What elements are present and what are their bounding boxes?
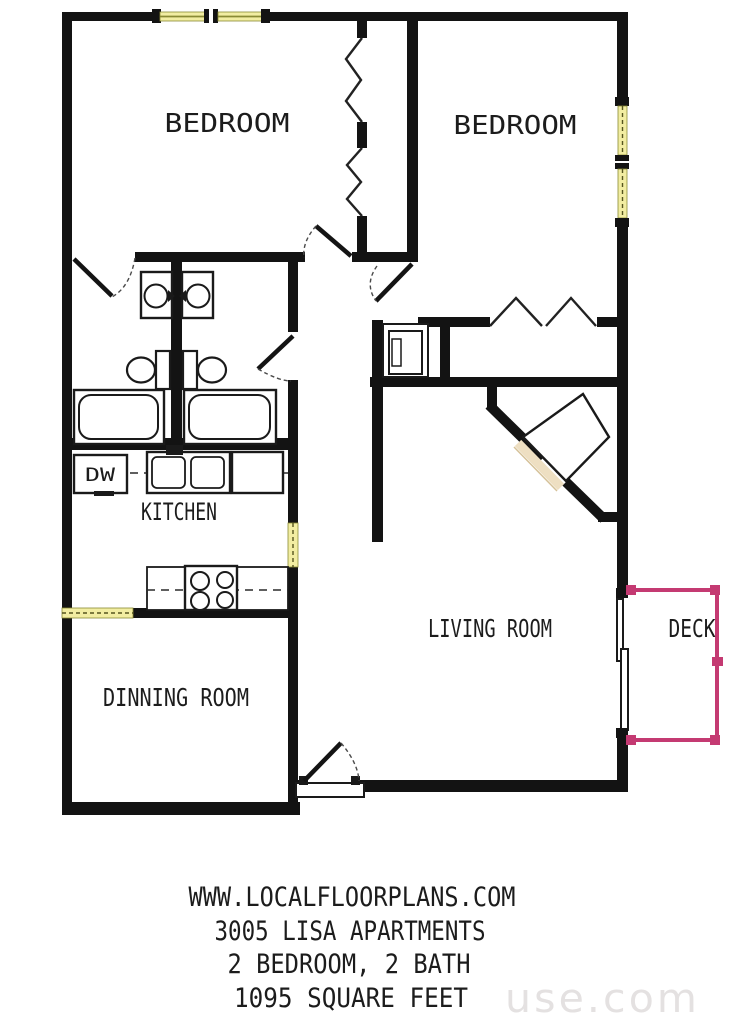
footer-website: WWW.LOCALFLOORPLANS.COM [189, 882, 516, 913]
window-cap [615, 163, 629, 169]
wall-segment [288, 252, 298, 332]
deck-sliding-door [616, 588, 628, 738]
cabinet [232, 452, 283, 493]
utility-closet [383, 324, 428, 377]
entry-threshold [296, 783, 364, 797]
sink-bowl [187, 285, 210, 308]
living-room-label: LIVING ROOM [428, 614, 552, 643]
bedroom-left-door [304, 226, 351, 258]
bathtub [189, 395, 270, 439]
wall-segment [135, 252, 305, 262]
window-cap [615, 97, 629, 106]
fireplace [487, 387, 628, 522]
bathtub [79, 395, 158, 439]
bifold-door [490, 298, 542, 326]
bathroom-right-door [258, 336, 293, 381]
wall-segment [266, 12, 628, 21]
wall-segment [360, 780, 628, 792]
wall-segment [352, 252, 418, 262]
toilet-bowl [127, 358, 155, 383]
toilet-tank [183, 351, 197, 389]
kitchen-pass-through-window [288, 523, 298, 567]
footer-property-name: 3005 LISA APARTMENTS [215, 916, 486, 947]
door-swing-arc [304, 226, 316, 258]
wall-segment [370, 377, 628, 387]
toilet-bowl [198, 358, 226, 383]
accordion-door [347, 148, 362, 216]
sink-basin [152, 457, 185, 488]
firebox [523, 394, 609, 481]
door-leaf [258, 336, 293, 369]
floor-plan-drawing: use.com BEDROOM BEDROOM KITCHEN DINNING … [0, 0, 748, 1024]
wall-segment [288, 450, 298, 523]
bedroom-right-closet-bifold-doors [490, 298, 596, 326]
wall-segment [407, 12, 418, 262]
door-leaf [74, 259, 112, 296]
window-cap [261, 9, 270, 23]
wall-segment [62, 802, 300, 815]
dining-pass-through-window [62, 608, 133, 618]
accordion-door [346, 38, 362, 122]
watermark-text: use.com [505, 976, 700, 1022]
door-leaf [304, 743, 341, 781]
deck-post [710, 585, 720, 595]
wall-segment [357, 122, 367, 148]
dishwasher-label: DW [85, 464, 116, 486]
entry-door [296, 743, 364, 797]
window-cap [615, 155, 629, 161]
door-swing-arc [258, 369, 291, 381]
faucet-icon [166, 445, 183, 455]
sink-basin [191, 457, 224, 488]
wall-segment [357, 216, 367, 252]
stove-burner [217, 592, 233, 608]
window-cap [213, 9, 218, 23]
stove-burner [191, 572, 209, 590]
deck-outline [626, 585, 723, 745]
wall-segment [288, 380, 298, 438]
door-swing-arc [370, 266, 377, 301]
wall-segment [440, 327, 450, 377]
door-leaf [316, 226, 351, 256]
footer-bed-bath: 2 BEDROOM, 2 BATH [228, 949, 471, 980]
bedroom-left-label: BEDROOM [165, 109, 290, 139]
bedroom-right-door [370, 264, 412, 301]
floor-plan-page: use.com BEDROOM BEDROOM KITCHEN DINNING … [0, 0, 748, 1024]
wall-segment [62, 12, 72, 815]
dining-room-label: DINNING ROOM [103, 683, 249, 712]
bathroom-left-door [74, 258, 135, 297]
wall-segment [372, 320, 383, 542]
sliding-panel [621, 649, 628, 730]
bedroom-right-window [615, 97, 629, 227]
kitchen-label: KITCHEN [141, 498, 217, 526]
window-cap [204, 9, 209, 23]
deck-post [626, 735, 636, 745]
stove-burner [191, 592, 209, 610]
door-swing-arc [112, 258, 135, 297]
door-swing-arc [341, 743, 359, 781]
footer-square-feet: 1095 SQUARE FEET [234, 983, 468, 1014]
wall-segment [598, 512, 628, 522]
toilet-tank [156, 351, 170, 389]
wall-segment [597, 317, 628, 327]
wall-segment [288, 567, 298, 612]
deck-rail [627, 590, 717, 740]
deck-post [626, 585, 636, 595]
wall-segment [62, 12, 160, 21]
window-cap [615, 218, 629, 227]
stove-burner [217, 572, 233, 588]
wall-segment [617, 12, 628, 103]
bedroom-left-window [152, 9, 270, 23]
deck-post [712, 657, 723, 666]
sink-bowl [145, 285, 168, 308]
appliance-detail [392, 339, 401, 366]
footer-text: WWW.LOCALFLOORPLANS.COM 3005 LISA APARTM… [189, 882, 516, 1014]
bedroom-right-label: BEDROOM [454, 111, 577, 141]
dishwasher-detail [94, 491, 114, 496]
bathroom-left-fixtures [74, 272, 175, 444]
bathroom-right-fixtures [179, 272, 276, 444]
deck-post [710, 735, 720, 745]
wall-segment [357, 21, 367, 38]
wall-segment [617, 223, 628, 598]
door-leaf [376, 264, 412, 301]
bifold-door [546, 298, 596, 326]
deck-label: DECK [669, 614, 716, 643]
